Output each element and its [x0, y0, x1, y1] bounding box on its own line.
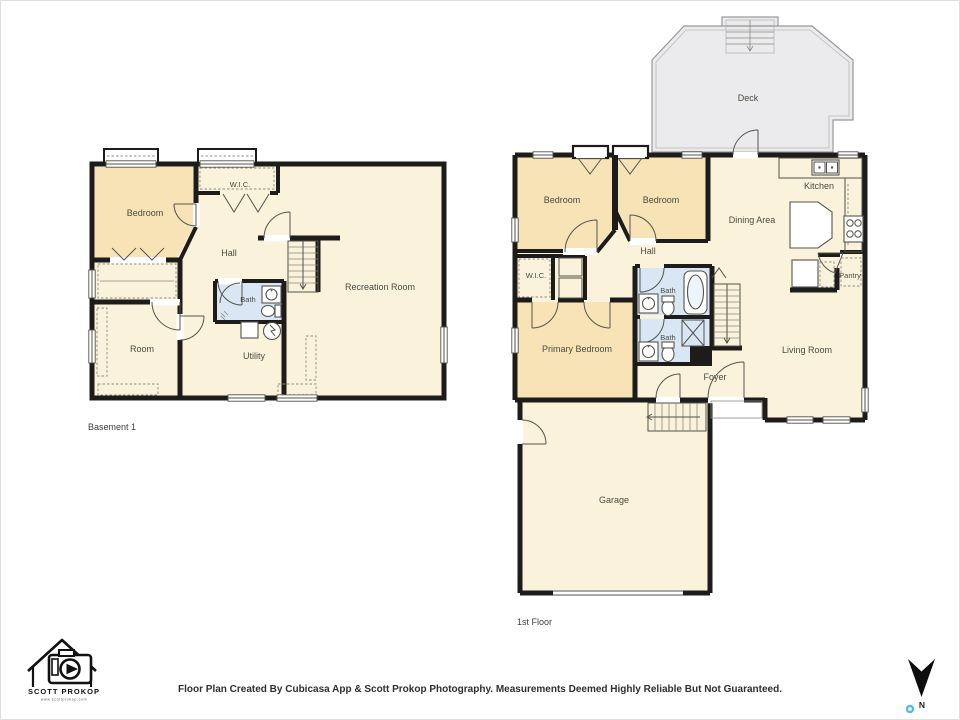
logo-website: www.scottprokop.com: [41, 698, 87, 702]
room-label-living-room: Living Room: [782, 345, 832, 355]
room-label-basement-bedroom: Bedroom: [127, 208, 164, 218]
room-label-basement-hall: Hall: [221, 248, 237, 258]
room-label-primary-bedroom: Primary Bedroom: [542, 344, 612, 354]
room-label-bedroom-right: Bedroom: [643, 195, 680, 205]
room-label-first-hall: Hall: [640, 246, 656, 256]
room-label-bedroom-left: Bedroom: [544, 195, 581, 205]
logo-name: SCOTT PROKOP: [28, 687, 100, 696]
room-label-basement-bath: Bath: [240, 295, 255, 304]
room-label-recreation-room: Recreation Room: [345, 282, 415, 292]
logo-camera-icon: [49, 650, 91, 683]
location-dot-icon: [907, 706, 913, 712]
north-label: N: [919, 700, 925, 710]
room-label-first-wic: W.I.C.: [526, 271, 546, 280]
room-label-bath-lower: Bath: [660, 333, 675, 342]
room-label-basement-room: Room: [130, 344, 154, 354]
room-label-garage: Garage: [599, 495, 629, 505]
deck: Deck: [652, 17, 853, 152]
basement-title: Basement 1: [88, 422, 136, 432]
room-label-deck: Deck: [738, 93, 759, 103]
room-label-foyer: Foyer: [703, 372, 726, 382]
floor-plan-canvas: Bedroom W.I.C. Hall Recreation Room Bath…: [0, 0, 960, 720]
room-label-kitchen: Kitchen: [804, 181, 834, 191]
room-label-dining-area: Dining Area: [729, 215, 776, 225]
room-label-utility: Utility: [243, 351, 265, 361]
first-floor-title: 1st Floor: [517, 617, 552, 627]
room-label-pantry: Pantry: [839, 271, 861, 280]
room-label-basement-wic: W.I.C.: [230, 180, 250, 189]
disclaimer-text: Floor Plan Created By Cubicasa App & Sco…: [178, 684, 782, 695]
room-label-bath-upper: Bath: [660, 286, 675, 295]
basement-plan: Bedroom W.I.C. Hall Recreation Room Bath…: [88, 149, 447, 432]
